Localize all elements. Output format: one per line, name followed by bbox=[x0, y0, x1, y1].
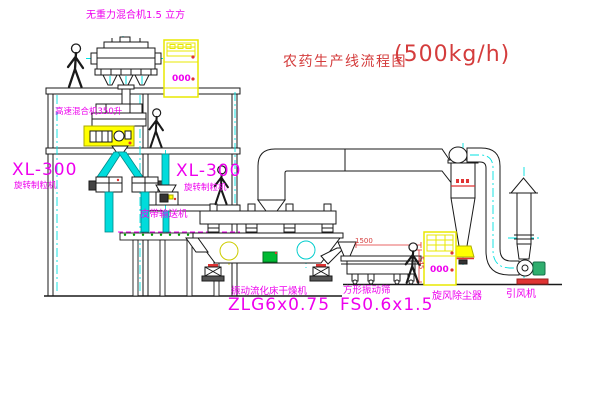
worker-top-floor bbox=[68, 44, 83, 87]
label-belt-conveyor: 皮带输送机 bbox=[140, 210, 188, 220]
exhaust-stack bbox=[509, 178, 538, 259]
flow-diagram-canvas: 000 bbox=[0, 0, 600, 403]
cabinet-display-2: 000 bbox=[430, 265, 449, 275]
fluid-bed-dryer-machine bbox=[186, 204, 344, 281]
label-granulator-left-name: 旋转制粒机 bbox=[14, 182, 57, 191]
diagram-title: 农药生产线流程图 bbox=[283, 51, 407, 71]
label-sieve-model: FS0.6x1.5 bbox=[340, 297, 433, 314]
cabinet-display-1: 000 bbox=[172, 74, 191, 84]
label-high-speed-mixer: 高速混合机350升 bbox=[55, 108, 122, 117]
dimension-sieve-height: 545 bbox=[417, 256, 424, 269]
label-granulator-right-name: 旋转制粒机 bbox=[184, 184, 227, 193]
control-cabinet-bottom: 000 bbox=[424, 232, 456, 285]
control-cabinet-top: 000 bbox=[164, 40, 198, 97]
label-gravity-mixer: 无重力混合机1.5 立方 bbox=[86, 11, 185, 21]
y-split-duct bbox=[97, 152, 143, 177]
dimension-sieve-length: 1500 bbox=[355, 238, 373, 245]
worker-second-floor bbox=[150, 109, 163, 147]
label-dryer-model: ZLG6x0.75 bbox=[228, 297, 330, 314]
granulator-left-machine bbox=[89, 177, 122, 232]
label-granulator-left-model: XL-300 bbox=[12, 162, 77, 179]
diagram-title-capacity: (500kg/h) bbox=[394, 42, 510, 67]
label-cyclone: 旋风除尘器 bbox=[432, 292, 482, 302]
dryer-exhaust-duct bbox=[258, 149, 453, 211]
label-granulator-right-model: XL-300 bbox=[176, 163, 241, 180]
label-fan: 引风机 bbox=[506, 290, 536, 300]
mezzanine-feeder-machine bbox=[156, 154, 178, 232]
induced-draft-fan-machine bbox=[517, 260, 548, 284]
